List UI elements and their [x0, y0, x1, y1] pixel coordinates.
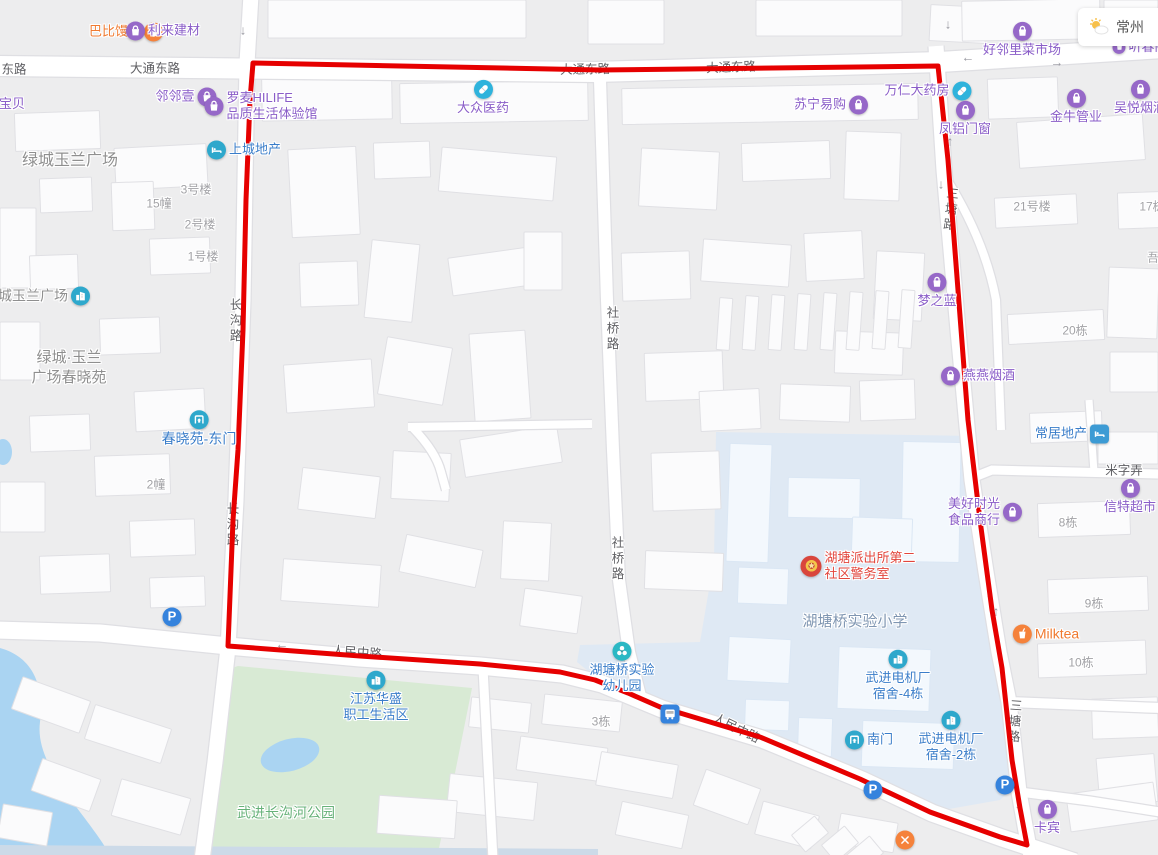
pill-icon — [953, 82, 972, 101]
poi-parking-east[interactable]: P — [996, 776, 1015, 795]
bag-icon — [927, 273, 946, 292]
poi-parking-south[interactable]: P — [864, 781, 883, 800]
poi-kabin[interactable]: 卡宾 — [1034, 800, 1060, 836]
poi-nanmen[interactable]: 南门 — [845, 731, 893, 750]
bld-icon — [366, 671, 385, 690]
poi-xinte-chaoshi[interactable]: 信特超市 — [1104, 479, 1156, 515]
poi-label: 卡宾 — [1034, 820, 1060, 836]
poi-jinniu-guanye[interactable]: 金牛管业 — [1050, 89, 1102, 125]
bag-icon — [849, 96, 868, 115]
poi-lilai-jiancai[interactable]: 利来建材 — [126, 22, 200, 41]
bag-icon — [955, 101, 974, 120]
poi-label: 宝贝 — [0, 96, 25, 112]
parking-icon: P — [864, 781, 883, 800]
poi-meihao-shiguang[interactable]: 美好时光食品商行 — [948, 496, 1022, 529]
bag-icon — [1130, 80, 1149, 99]
poi-label: 万仁大药房 — [884, 83, 949, 99]
poi-label: 邻邻壹 — [155, 89, 194, 105]
weather-city-label: 常州 — [1116, 17, 1144, 37]
poi-yanyan-yanjiu[interactable]: 燕燕烟酒 — [941, 367, 1015, 386]
poi-label: 好邻里菜市场 — [983, 42, 1061, 58]
poi-label: 苏宁易购 — [794, 97, 846, 113]
poi-jiangsu-huasheng[interactable]: 江苏华盛职工生活区 — [343, 671, 408, 724]
bag-icon — [204, 97, 223, 116]
poi-dazhong-yiyao[interactable]: 大众医药 — [457, 80, 509, 116]
x-icon — [896, 831, 915, 850]
poi-parking-west[interactable]: P — [163, 608, 182, 627]
poi-wujin-dianjichang-dorm2[interactable]: 武进电机厂宿舍-2栋 — [918, 711, 983, 764]
poi-label: 南门 — [867, 732, 893, 748]
poi-haolinli-caishichang[interactable]: 好邻里菜市场 — [983, 22, 1061, 58]
bag-icon — [1012, 22, 1031, 41]
poi-label: 美好时光食品商行 — [948, 496, 1000, 529]
poi-fenglv-menchuang[interactable]: 凤铝门窗 — [939, 101, 991, 137]
poi-label: 金牛管业 — [1050, 109, 1102, 125]
poi-lvcheng-yulan-plaza[interactable]: 绿城玉兰广场 — [0, 287, 90, 306]
poi-bus-stop[interactable] — [661, 705, 680, 724]
poi-luomai-hilife[interactable]: 罗麦HILIFE品质生活体验馆 — [204, 90, 317, 123]
cup-icon — [1013, 625, 1032, 644]
poi-label: 大众医药 — [457, 100, 509, 116]
poi-label: 武进电机厂宿舍-4栋 — [865, 670, 930, 703]
poi-mengzhilan[interactable]: 梦之蓝 — [917, 273, 956, 309]
poi-suning-yigou[interactable]: 苏宁易购 — [794, 96, 868, 115]
poi-wanren-dayaofang[interactable]: 万仁大药房 — [884, 82, 971, 101]
poi-label: 湖塘桥实验幼儿园 — [589, 662, 654, 695]
poi-wujin-dianjichang-dorm4[interactable]: 武进电机厂宿舍-4栋 — [865, 650, 930, 703]
sun-cloud-icon — [1088, 17, 1110, 37]
bag-icon — [1003, 503, 1022, 522]
bed-icon — [1090, 425, 1109, 444]
bus-icon — [661, 705, 680, 724]
route-polygon — [228, 63, 1027, 845]
poi-restaurant[interactable] — [896, 831, 915, 850]
poi-label: 江苏华盛职工生活区 — [343, 691, 408, 724]
poi-chunxiaoyuan-dongmen[interactable]: 春晓苑-东门 — [162, 410, 237, 448]
poi-milktea[interactable]: Milktea — [1013, 625, 1079, 644]
poi-hutang-police-room[interactable]: 湖塘派出所第二社区警务室 — [800, 550, 915, 583]
poi-label: 燕燕烟酒 — [963, 368, 1015, 384]
bag-icon — [1120, 479, 1139, 498]
gate-icon — [845, 731, 864, 750]
pill-icon — [473, 80, 492, 99]
poi-label: 湖塘派出所第二社区警务室 — [824, 550, 915, 583]
bag-icon — [1037, 800, 1056, 819]
weather-widget[interactable]: 常州 — [1078, 8, 1158, 46]
poi-label: 春晓苑-东门 — [162, 430, 237, 448]
poi-baobei[interactable]: 宝贝 — [0, 96, 25, 112]
bag-icon — [1066, 89, 1085, 108]
flower-icon — [612, 642, 631, 661]
parking-icon: P — [996, 776, 1015, 795]
bed-icon — [207, 141, 226, 160]
gate-icon — [189, 410, 208, 429]
poi-label: 吴悦烟酒 — [1114, 100, 1158, 116]
bld-icon — [71, 287, 90, 306]
poi-label: 绿城玉兰广场 — [0, 287, 68, 305]
poi-label: 凤铝门窗 — [939, 121, 991, 137]
poi-shangcheng-dichan[interactable]: 上城地产 — [207, 141, 281, 160]
poi-label: Milktea — [1035, 625, 1079, 643]
poi-hutangqiao-kindergarten[interactable]: 湖塘桥实验幼儿园 — [589, 642, 654, 695]
poi-changju-dichan[interactable]: 常居地产 — [1035, 425, 1109, 444]
poi-label: 信特超市 — [1104, 499, 1156, 515]
poi-label: 梦之蓝 — [917, 293, 956, 309]
poi-label: 上城地产 — [229, 142, 281, 158]
poi-label: 罗麦HILIFE品质生活体验馆 — [226, 90, 317, 123]
map-canvas[interactable]: 东路大通东路大通东路大通东路长沟路长沟路社桥路社桥路三塘路三塘路人民中路人民中路… — [0, 0, 1158, 855]
poi-wuyue-yanjiu[interactable]: 吴悦烟酒 — [1114, 80, 1158, 116]
bld-icon — [888, 650, 907, 669]
bag-icon — [941, 367, 960, 386]
poi-label: 利来建材 — [148, 23, 200, 39]
poi-label: 常居地产 — [1035, 426, 1087, 442]
poi-label: 武进电机厂宿舍-2栋 — [918, 731, 983, 764]
bag-icon — [126, 22, 145, 41]
bld-icon — [941, 711, 960, 730]
badge-icon — [800, 556, 821, 577]
parking-icon: P — [163, 608, 182, 627]
